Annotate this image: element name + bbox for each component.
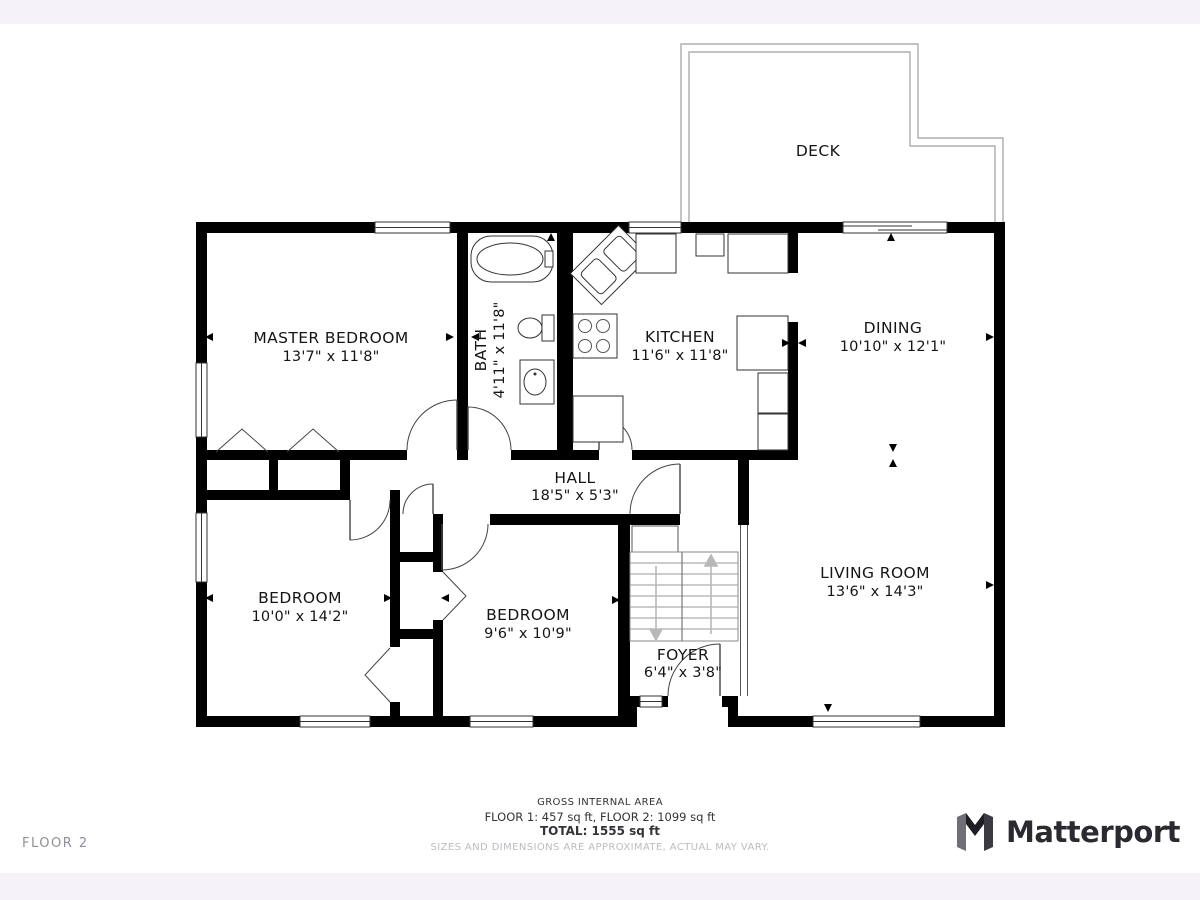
door-bedroom1 xyxy=(350,500,390,540)
dining-label: DINING xyxy=(864,319,923,337)
window-master-top xyxy=(375,222,450,233)
bath-sink xyxy=(520,360,554,404)
foyer-label: FOYER xyxy=(657,646,709,664)
dining-dims: 10'10" x 12'1" xyxy=(840,339,947,355)
bathtub xyxy=(471,236,553,282)
door-bedroom2 xyxy=(442,524,488,570)
door-master xyxy=(407,400,457,450)
window-kitchen-top xyxy=(629,222,681,233)
master-bedroom-dims: 13'7" x 11'8" xyxy=(282,349,379,365)
wall-closetcol-right-b xyxy=(433,620,443,727)
kitchen-fridge xyxy=(737,316,788,370)
bath-fixtures xyxy=(471,236,554,404)
kitchen-range xyxy=(573,314,617,358)
wall-kitchen-dining-top xyxy=(788,231,798,273)
bath-label: BATH xyxy=(472,329,490,372)
kitchen-counter-left xyxy=(573,396,623,442)
wall-kitchen-bottom-a xyxy=(573,450,599,460)
window-living-bottom xyxy=(813,716,920,727)
master-bedroom-label: MASTER BEDROOM xyxy=(253,329,408,347)
toilet xyxy=(518,315,554,341)
window-master-left xyxy=(196,363,207,437)
door-hall-closet xyxy=(403,484,433,514)
hall-label: HALL xyxy=(554,469,595,487)
wall-bath-kitchen xyxy=(557,233,573,460)
kitchen-cabinet2 xyxy=(758,414,788,450)
kitchen-counter-top2 xyxy=(696,234,724,256)
deck-outer-line xyxy=(681,44,1003,222)
living-room-label: LIVING ROOM xyxy=(820,564,930,582)
gross-internal-area-title: GROSS INTERNAL AREA xyxy=(0,796,1200,810)
sliding-door-dining-deck xyxy=(843,222,947,233)
wall-bedroom1-right-a xyxy=(390,500,400,647)
wall-closet-divider xyxy=(269,460,278,490)
wall-bottom-bedrooms xyxy=(196,716,627,727)
foyer-dims: 6'4" x 3'8" xyxy=(644,665,722,681)
floor-number-label: FLOOR 2 xyxy=(22,836,89,851)
floorplan-page: DECK MASTER BEDROOM 13'7" x 11'8" BATH 4… xyxy=(0,0,1200,900)
stair-landing xyxy=(632,526,678,552)
wall-closet-right-vert xyxy=(340,450,350,500)
brand-name: Matterport xyxy=(1006,815,1180,849)
living-room-dims: 13'6" x 14'3" xyxy=(826,584,923,600)
kitchen-cabinet1 xyxy=(758,373,788,413)
window-bedroom1-left xyxy=(196,513,207,582)
bedroom2-dims: 9'6" x 10'9" xyxy=(484,626,572,642)
door-bath xyxy=(468,407,511,450)
wall-hall-living xyxy=(738,450,749,525)
closet-bifold-bedroom1 xyxy=(365,648,390,702)
brand-logo: Matterport xyxy=(953,810,1180,854)
bedroom2-label: BEDROOM xyxy=(486,606,570,624)
bedroom1-dims: 10'0" x 14'2" xyxy=(251,609,348,625)
wall-bedroom1-right-b xyxy=(390,702,400,727)
wall-left xyxy=(196,222,207,727)
kitchen-counter-top1 xyxy=(636,234,676,273)
wall-kitchen-bottom-b xyxy=(632,450,798,460)
deck-label: DECK xyxy=(796,142,841,160)
kitchen-dims: 11'6" x 11'8" xyxy=(631,348,728,364)
window-foyer-sidelight xyxy=(640,696,662,707)
wall-master-bath xyxy=(457,233,468,460)
bath-label-group: BATH 4'11" x 11'8" xyxy=(472,301,508,398)
deck-outline xyxy=(681,44,1003,222)
wall-top-left xyxy=(196,222,798,233)
bedroom1-label: BEDROOM xyxy=(258,589,342,607)
deck-inner-line xyxy=(689,52,995,222)
wall-kitchen-dining-bottom xyxy=(788,322,798,460)
door-hall-living xyxy=(630,464,680,514)
wall-foyer-front-b xyxy=(662,696,668,707)
kitchen-label: KITCHEN xyxy=(645,328,715,346)
wall-bedroom2-right xyxy=(618,514,630,727)
floor-plan-drawing: DECK MASTER BEDROOM 13'7" x 11'8" BATH 4… xyxy=(0,0,1200,900)
wall-bath-bottom xyxy=(511,450,557,460)
wall-bedroom1-top-corner xyxy=(390,490,400,500)
kitchen-counter-top3 xyxy=(728,234,788,273)
wall-closetcol-divider1 xyxy=(400,552,433,562)
window-bedroom2-bottom xyxy=(470,716,533,727)
hall-dims: 18'5" x 5'3" xyxy=(531,488,619,504)
dimension-markers xyxy=(205,233,994,712)
wall-hall-bottom xyxy=(490,514,618,525)
bath-dims: 4'11" x 11'8" xyxy=(492,301,508,398)
wall-foyer-step-right xyxy=(728,696,738,727)
wall-closetcol-divider2 xyxy=(400,629,433,639)
closet-bifold-master xyxy=(216,429,339,452)
window-bedroom1-bottom xyxy=(300,716,370,727)
matterport-m-icon xyxy=(953,810,997,854)
wall-master-bottom xyxy=(196,450,407,460)
wall-bedroom1-top xyxy=(196,490,340,500)
wall-right xyxy=(994,222,1005,727)
